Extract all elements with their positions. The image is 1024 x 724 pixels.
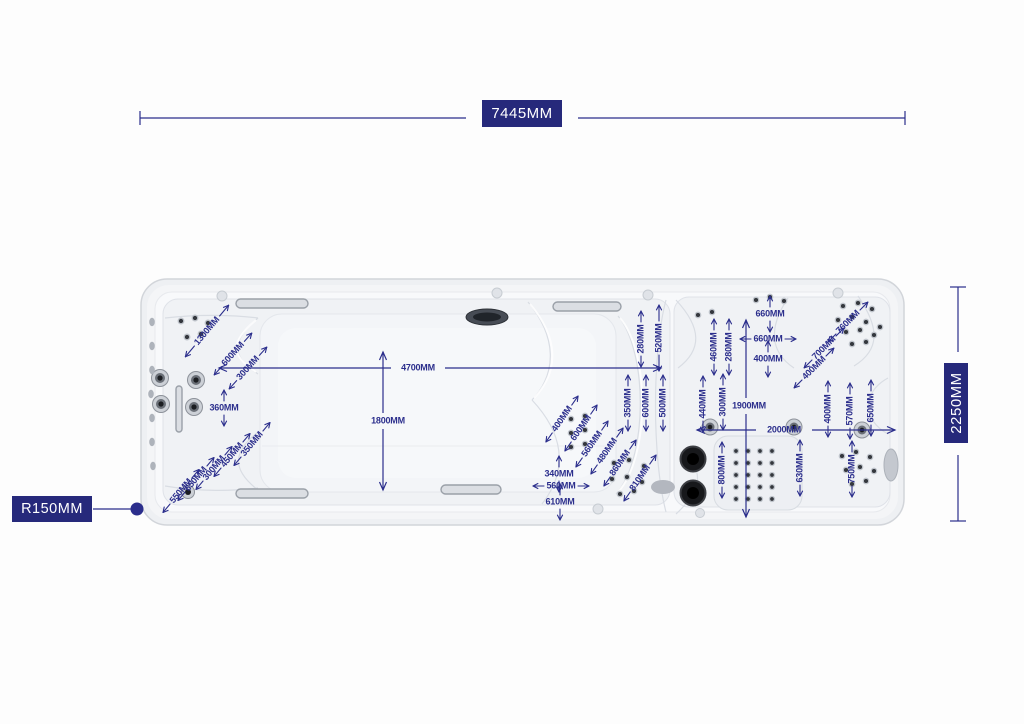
overall-length-label: 7445MM <box>482 100 562 127</box>
dimension-drawing-page: 1300MM600MM300MM360MM350MM450MM300MM650M… <box>0 0 1024 724</box>
topside-control-panel <box>466 309 508 325</box>
overall-width-value: 2250MM <box>948 372 965 433</box>
corner-radius-label: R150MM <box>12 496 92 522</box>
overall-width-label: 2250MM <box>944 363 968 443</box>
filter-inset <box>884 449 898 481</box>
seat-inset <box>651 480 675 494</box>
corner-radius-value: R150MM <box>21 501 83 517</box>
overall-length-value: 7445MM <box>491 105 552 122</box>
